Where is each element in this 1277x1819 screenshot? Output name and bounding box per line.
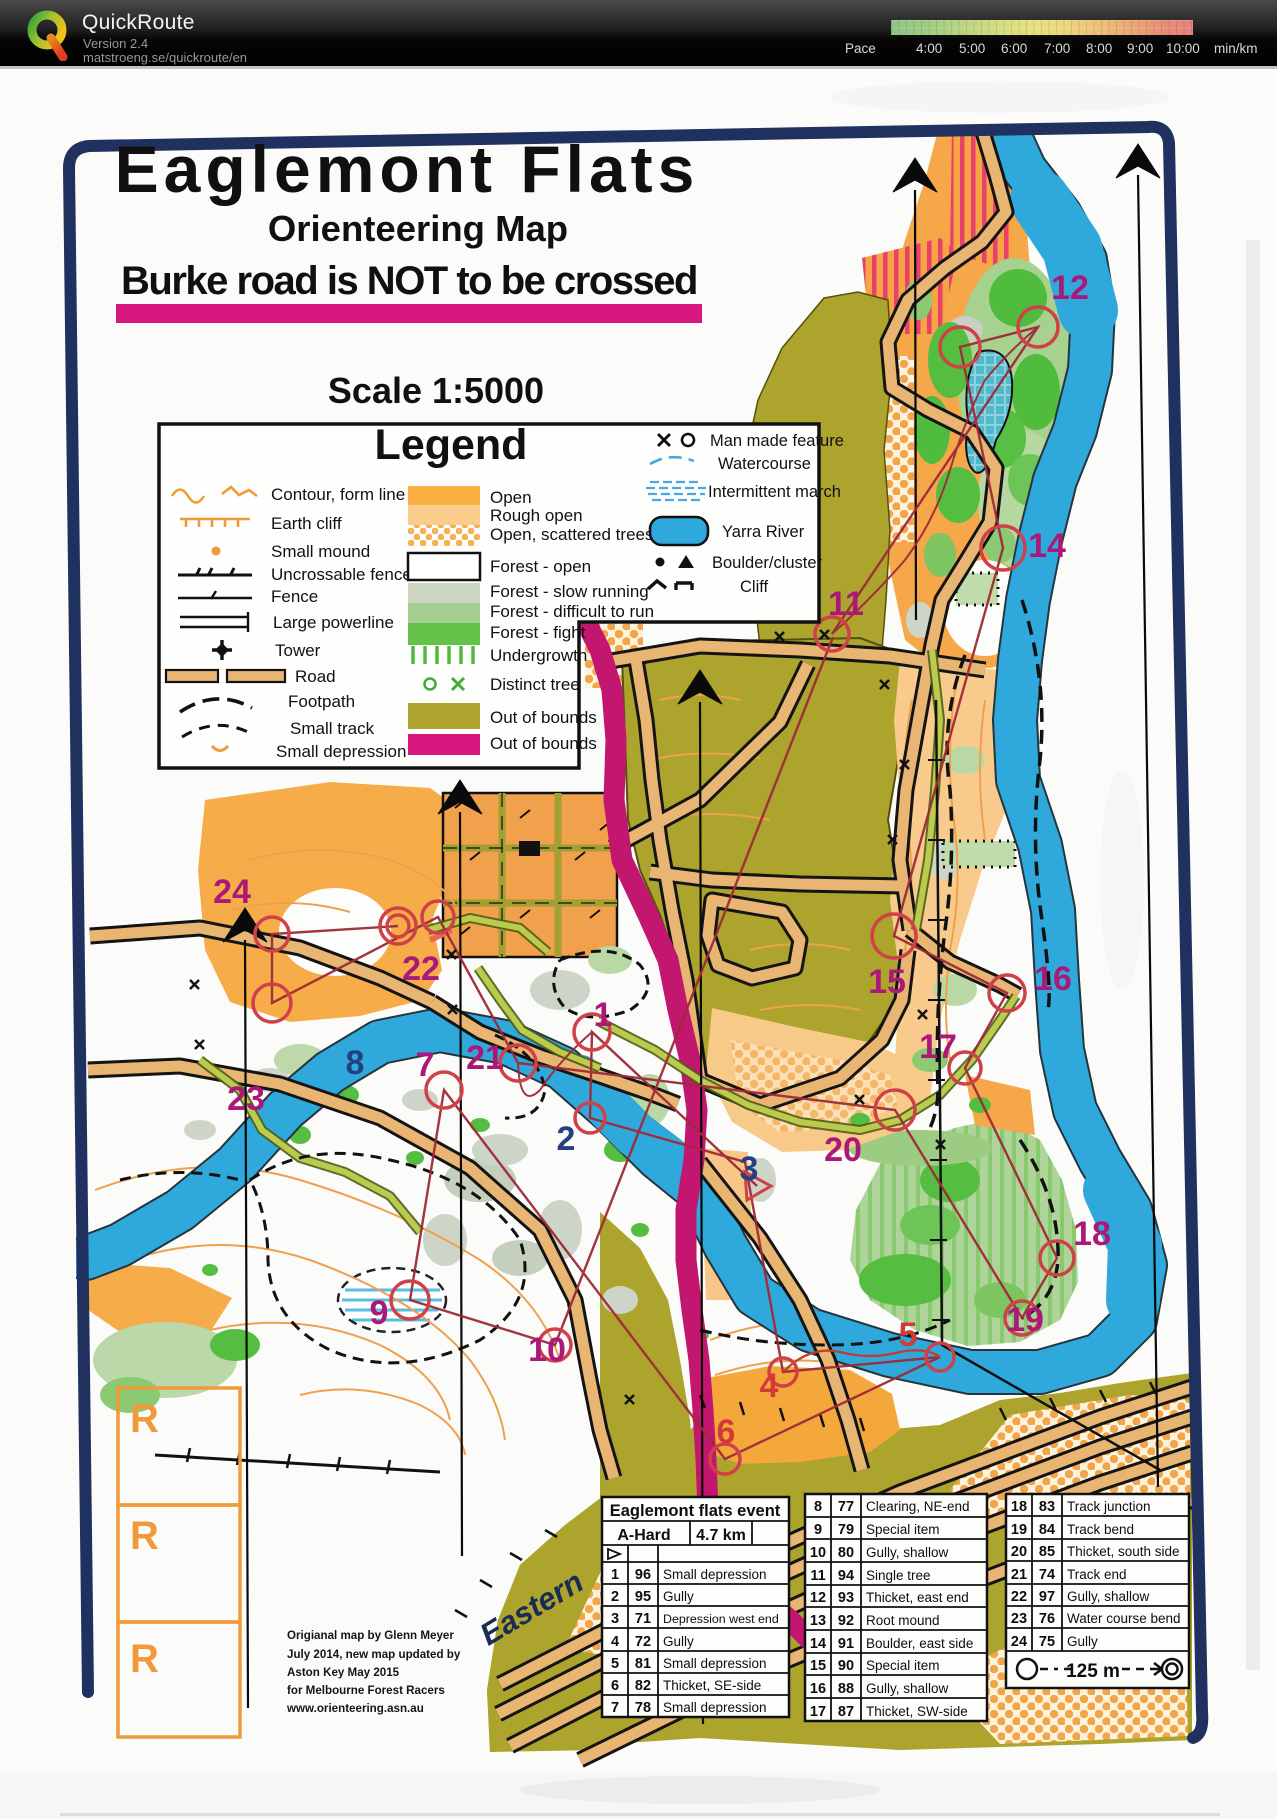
svg-text:Forest - open: Forest - open	[490, 557, 591, 576]
svg-text:84: 84	[1039, 1522, 1055, 1538]
svg-text:Thicket, SW-side: Thicket, SW-side	[866, 1704, 968, 1719]
svg-text:Boulder, east side: Boulder, east side	[866, 1636, 973, 1651]
svg-text:Water course bend: Water course bend	[1067, 1611, 1181, 1626]
svg-text:19: 19	[1011, 1522, 1027, 1538]
svg-text:85: 85	[1039, 1544, 1055, 1560]
svg-text:Track bend: Track bend	[1067, 1522, 1134, 1537]
svg-text:1: 1	[594, 996, 613, 1034]
svg-text:97: 97	[1039, 1589, 1055, 1605]
svg-text:17: 17	[919, 1028, 957, 1066]
svg-text:Uncrossable fence: Uncrossable fence	[271, 565, 412, 584]
svg-text:Contour, form line: Contour, form line	[271, 485, 405, 504]
svg-text:10: 10	[528, 1331, 566, 1369]
svg-text:Distinct tree: Distinct tree	[490, 675, 580, 694]
svg-text:Small depression: Small depression	[663, 1700, 767, 1715]
svg-text:Thicket, east end: Thicket, east end	[866, 1590, 969, 1605]
svg-text:94: 94	[838, 1568, 854, 1584]
svg-text:21: 21	[1011, 1567, 1027, 1583]
svg-text:80: 80	[838, 1545, 854, 1561]
svg-text:Watercourse: Watercourse	[718, 455, 811, 473]
svg-text:Gully: Gully	[1067, 1634, 1098, 1649]
svg-text:Special item: Special item	[866, 1522, 940, 1537]
svg-text:19: 19	[1006, 1301, 1044, 1339]
svg-text:20: 20	[1011, 1544, 1027, 1560]
svg-text:Eaglemont flats event: Eaglemont flats event	[610, 1502, 781, 1520]
svg-text:72: 72	[635, 1634, 651, 1650]
svg-text:74: 74	[1039, 1567, 1055, 1583]
svg-text:Burke road is NOT to be crosse: Burke road is NOT to be crossed	[121, 259, 697, 303]
svg-text:13: 13	[810, 1613, 826, 1629]
svg-text:24: 24	[213, 873, 251, 911]
svg-text:1: 1	[611, 1567, 619, 1583]
svg-text:4: 4	[760, 1367, 779, 1405]
svg-text:71: 71	[635, 1611, 651, 1627]
svg-text:Legend: Legend	[375, 421, 528, 469]
svg-text:12: 12	[1051, 269, 1089, 307]
svg-text:17: 17	[810, 1704, 826, 1720]
svg-text:16: 16	[810, 1681, 826, 1697]
svg-text:A-Hard: A-Hard	[617, 1527, 670, 1544]
svg-text:Man made feature: Man made feature	[710, 432, 844, 450]
svg-text:R: R	[130, 1637, 159, 1681]
svg-text:Open: Open	[490, 488, 532, 507]
svg-text:Clearing, NE-end: Clearing, NE-end	[866, 1499, 970, 1514]
svg-text:2: 2	[557, 1120, 576, 1158]
svg-text:Yarra River: Yarra River	[722, 523, 805, 541]
svg-text:Gully, shallow: Gully, shallow	[1067, 1589, 1150, 1604]
svg-text:Large powerline: Large powerline	[273, 613, 394, 632]
svg-text:82: 82	[635, 1678, 651, 1694]
svg-text:Earth cliff: Earth cliff	[271, 514, 342, 533]
svg-text:79: 79	[838, 1522, 854, 1538]
svg-text:4.7 km: 4.7 km	[696, 1527, 746, 1544]
svg-text:Footpath: Footpath	[288, 692, 355, 711]
svg-text:Fence: Fence	[271, 587, 318, 606]
svg-text:Small depression: Small depression	[663, 1656, 767, 1671]
svg-text:Small track: Small track	[290, 719, 375, 738]
svg-text:125 m: 125 m	[1066, 1661, 1120, 1682]
svg-text:11: 11	[810, 1568, 825, 1584]
svg-text:Eaglemont Flats: Eaglemont Flats	[115, 132, 700, 206]
svg-text:Out of bounds: Out of bounds	[490, 708, 597, 727]
svg-text:Forest - fight: Forest - fight	[490, 623, 586, 642]
svg-text:6: 6	[717, 1413, 736, 1451]
svg-text:4: 4	[611, 1634, 619, 1650]
svg-text:Forest - slow running: Forest - slow running	[490, 582, 649, 601]
svg-text:15: 15	[810, 1658, 826, 1674]
svg-text:14: 14	[810, 1636, 826, 1652]
svg-text:Boulder/cluster: Boulder/cluster	[712, 554, 823, 572]
svg-text:for Melbourne Forest Racers: for Melbourne Forest Racers	[287, 1684, 445, 1697]
svg-text:Out of bounds: Out of bounds	[490, 734, 597, 753]
svg-text:Single tree: Single tree	[866, 1568, 931, 1583]
svg-text:18: 18	[1073, 1215, 1111, 1253]
svg-text:8: 8	[814, 1499, 822, 1515]
svg-text:6: 6	[611, 1678, 619, 1694]
svg-text:77: 77	[838, 1499, 854, 1515]
svg-text:Origianal map by Glenn Meyer: Origianal map by Glenn Meyer	[287, 1629, 454, 1642]
svg-text:Intermittent march: Intermittent march	[708, 483, 841, 501]
svg-text:Depression west end: Depression west end	[663, 1612, 779, 1626]
svg-text:2: 2	[611, 1589, 619, 1605]
svg-text:16: 16	[1034, 960, 1072, 998]
svg-text:90: 90	[838, 1658, 854, 1674]
svg-text:76: 76	[1039, 1611, 1055, 1627]
svg-text:22: 22	[1011, 1589, 1027, 1605]
svg-text:21: 21	[466, 1039, 504, 1077]
svg-text:14: 14	[1028, 527, 1066, 565]
svg-text:95: 95	[635, 1589, 651, 1605]
svg-text:3: 3	[740, 1150, 759, 1188]
svg-text:Track junction: Track junction	[1067, 1499, 1151, 1514]
svg-text:Root mound: Root mound	[866, 1613, 940, 1628]
svg-text:88: 88	[838, 1681, 854, 1697]
svg-text:Gully: Gully	[663, 1634, 694, 1649]
svg-text:Aston Key May 2015: Aston Key May 2015	[287, 1666, 400, 1679]
svg-text:Thicket, south side: Thicket, south side	[1067, 1544, 1180, 1559]
svg-text:Tower: Tower	[275, 641, 321, 660]
svg-text:9: 9	[814, 1522, 822, 1538]
svg-text:92: 92	[838, 1613, 854, 1629]
svg-text:www.orienteering.asn.au: www.orienteering.asn.au	[286, 1702, 424, 1715]
svg-text:Open, scattered trees: Open, scattered trees	[490, 525, 653, 544]
svg-text:87: 87	[838, 1704, 854, 1720]
svg-text:10: 10	[810, 1545, 826, 1561]
svg-text:20: 20	[824, 1131, 862, 1169]
svg-text:July 2014, new map updated by: July 2014, new map updated by	[287, 1648, 461, 1661]
svg-text:22: 22	[402, 950, 440, 988]
svg-text:Rough open: Rough open	[490, 506, 583, 525]
svg-text:78: 78	[635, 1700, 651, 1716]
svg-text:93: 93	[838, 1590, 854, 1606]
svg-text:Scale 1:5000: Scale 1:5000	[328, 370, 544, 411]
svg-text:75: 75	[1039, 1634, 1055, 1650]
svg-text:5: 5	[899, 1316, 918, 1354]
svg-text:Gully, shallow: Gully, shallow	[866, 1545, 949, 1560]
svg-text:8: 8	[346, 1044, 365, 1082]
svg-text:23: 23	[1011, 1611, 1027, 1627]
svg-text:11: 11	[828, 585, 864, 623]
svg-text:Track end: Track end	[1067, 1567, 1127, 1582]
svg-text:Special item: Special item	[866, 1658, 940, 1673]
svg-text:83: 83	[1039, 1499, 1055, 1515]
svg-text:Thicket, SE-side: Thicket, SE-side	[663, 1678, 761, 1693]
svg-text:18: 18	[1011, 1499, 1027, 1515]
svg-text:9: 9	[370, 1294, 389, 1332]
svg-text:Cliff: Cliff	[740, 578, 769, 596]
svg-text:R: R	[130, 1514, 159, 1558]
svg-text:23: 23	[227, 1080, 265, 1118]
svg-text:91: 91	[838, 1636, 854, 1652]
svg-text:Forest - difficult to run: Forest - difficult to run	[490, 602, 654, 621]
svg-text:Gully: Gully	[663, 1589, 694, 1604]
svg-text:Undergrowth: Undergrowth	[490, 646, 587, 665]
svg-text:Orienteering Map: Orienteering Map	[268, 208, 568, 249]
svg-text:Small mound: Small mound	[271, 542, 370, 561]
svg-text:Small depression: Small depression	[276, 742, 406, 761]
svg-text:5: 5	[611, 1656, 619, 1672]
svg-text:96: 96	[635, 1567, 651, 1583]
svg-text:Small depression: Small depression	[663, 1567, 767, 1582]
svg-text:3: 3	[611, 1611, 619, 1627]
svg-text:R: R	[130, 1397, 159, 1441]
svg-text:15: 15	[868, 963, 906, 1001]
svg-text:7: 7	[416, 1046, 435, 1084]
svg-text:24: 24	[1011, 1634, 1027, 1650]
svg-text:7: 7	[611, 1700, 619, 1716]
svg-text:81: 81	[635, 1656, 651, 1672]
svg-text:Gully, shallow: Gully, shallow	[866, 1681, 949, 1696]
svg-text:Road: Road	[295, 667, 336, 686]
svg-text:12: 12	[810, 1590, 826, 1606]
